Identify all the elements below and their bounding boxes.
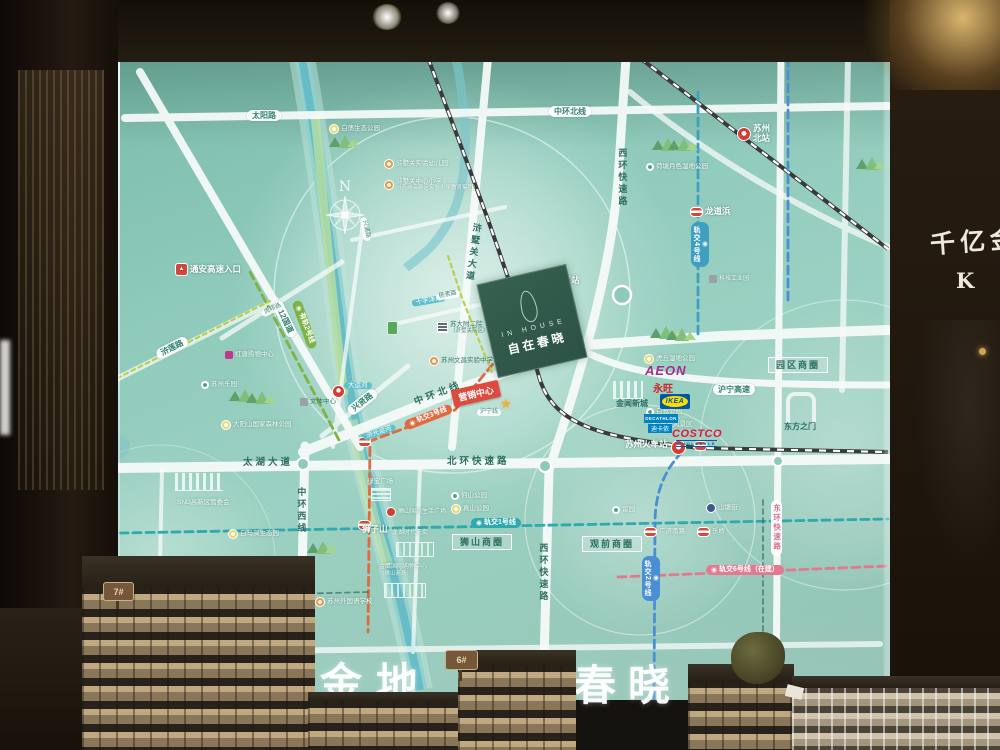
poi-culture-sports-center-icon (300, 398, 308, 406)
poi-wenchang-middle-school-icon (429, 356, 439, 366)
costco-wholesale-label: WHOLESALE (676, 440, 717, 447)
ceiling-light (436, 2, 460, 24)
metro-line1-pill: 轨交1号线 (471, 518, 521, 528)
showroom-photo: IN HOUSE 自在春晓 营销中心 ★ N AEON 永旺 IKEA DECA… (0, 0, 1000, 750)
decathlon-cn-label: 迪卡侬 (648, 424, 672, 433)
rail-huning-line: 沪宁线 (477, 409, 501, 416)
poi-jinchang-newtown: 金阊新城 (616, 399, 648, 408)
poi-xushuguan-kindergarten: 浒墅关实验幼儿园 (384, 159, 448, 169)
model-roof (792, 676, 1000, 688)
road-zhonghuan-west-label: 中环西线 (296, 487, 306, 535)
poi-tech-industrial-park-label: 科技工业园 (719, 276, 749, 283)
poi-shishan-intl-life-plaza-icon (386, 507, 396, 517)
biz-circle-guanqian-label: 观前商圈 (590, 539, 634, 549)
rail-huning-line-label: 沪宁线 (480, 409, 498, 416)
jinchang-skyline-icon (613, 381, 643, 399)
poi-dayangshan-forest-park-icon (221, 420, 231, 430)
poi-suda-fuer-hospital-icon (437, 322, 448, 333)
metro-line6-pill-label: 轨交6号线（在建） (719, 566, 779, 574)
poi-jinchang-newtown-label: 金阊新城 (616, 399, 648, 408)
poi-longfor-paradise-walk-label: 龙湖时代天街 (392, 530, 428, 537)
biz-circle-yuanqu: 园区商圈 (768, 357, 828, 373)
poi-tongan-expwy-entrance-icon: ▲ (175, 263, 188, 276)
poi-hetangyuese-wetland-park-icon (646, 163, 654, 171)
road-zhonghuan-north-pill: 中环北线 (549, 106, 591, 117)
gate-of-orient-icon (786, 392, 816, 424)
lot-sign-6: 6# (445, 650, 478, 670)
poi-zhenshan-park-label: 真山公园 (463, 505, 489, 512)
poi-suzhou-foreign-language-school: 苏州外国语学校 (315, 597, 373, 607)
station-guangji-south-rd-label: 广济南路 (659, 528, 685, 535)
wall-gold-dot (979, 348, 986, 355)
decathlon-logo: DECATHLON (644, 414, 678, 423)
metro-line-icon (295, 305, 303, 313)
poi-liuyuan: 留园 (612, 506, 635, 514)
station-leqiao-label: 乐桥 (712, 528, 725, 535)
poi-baidang-eco-park-label: 白荡生态公园 (341, 125, 380, 132)
biz-circle-shishan: 狮山商圈 (452, 534, 512, 550)
wall-light-streak (0, 340, 10, 435)
metro-line-icon (702, 241, 708, 247)
poi-xushuguan-primary-school: 浒墅关中心小学（苏州高新区实验小学教育集团） (384, 178, 479, 192)
metro-line-icon (653, 575, 659, 581)
metro-line-icon (409, 419, 417, 427)
station-longdaobang-label: 龙道浜 (705, 207, 731, 217)
poi-gate-of-orient-label: 东方之门 (784, 422, 816, 431)
road-beihuan-expwy-label: 北环快速路 (447, 457, 510, 468)
poi-xushuguan-primary-school-icon (384, 180, 394, 190)
poi-tech-industrial-park: 科技工业园 (709, 275, 749, 283)
poi-xushuguan-primary-school-sublabel: （苏州高新区实验小学教育集团） (396, 185, 479, 191)
poi-shantangjie-label: 山塘街 (718, 504, 738, 511)
poi-suda-fuer-hospital: 苏大附二院（浒墅关院区） (437, 321, 489, 335)
poi-suzhou-amusement-land-label: 苏州乐园 (211, 381, 237, 388)
poi-shishan-intl-life-plaza: 狮山国际生活广场 (386, 507, 446, 517)
metro-line4-pill-label: 轨交4号线 (692, 226, 700, 263)
poi-lvbao-plaza-label: 绿宝广场 (367, 478, 393, 485)
poi-liuyuan-icon (612, 506, 620, 514)
poi-culture-sports-center: 文体中心 (300, 398, 336, 406)
poi-heshan-park: 何山公园 (451, 492, 487, 500)
poi-wenchang-middle-school: 苏州文昌实验中学 (429, 356, 493, 366)
poi-jinying-mall-label: 金鹰国际购物中心 (379, 564, 427, 571)
poi-liuyuan-label: 留园 (622, 506, 635, 513)
poi-suzhou-foreign-language-school-icon (315, 597, 325, 607)
metro-line6-pill: 轨交6号线（在建） (706, 565, 784, 575)
road-taiyanglu-label: 太阳路 (252, 111, 276, 120)
metro-line2-pill: 轨交2号线 (642, 556, 660, 601)
model-building (688, 680, 794, 750)
poi-tech-industrial-park-icon (709, 275, 717, 283)
lvbao-mall-icon (371, 488, 391, 501)
river-dayunhe-label: 大运河 (348, 382, 368, 389)
ikea-logo: IKEA (660, 394, 690, 409)
wall-logo-letter: K (956, 268, 974, 293)
banner-char-3: 春 (574, 652, 616, 713)
station-leqiao: 乐桥 (697, 527, 725, 537)
poi-dayangshan-forest-park: 大阳山国家森林公园 (221, 420, 292, 430)
poi-heshan-park-label: 何山公园 (461, 492, 487, 499)
road-taihu-dadao: 太湖大道 (243, 458, 293, 469)
road-xihuan-expwy-north-label: 西环快速路 (617, 148, 627, 208)
poi-suzhou-amusement-land: 苏州乐园 (201, 381, 237, 389)
poi-hetangyuese-wetland-park: 荷塘月色湿地公园 (646, 163, 708, 171)
poi-longfor-paradise-walk: 龙湖时代天街 (392, 530, 428, 537)
compass-north-label: N (339, 179, 351, 195)
metro-station-icon (697, 527, 710, 537)
model-building (458, 664, 576, 750)
station-suzhou-railway: 苏州火车站 (625, 440, 668, 450)
metro-station-icon (690, 207, 703, 217)
road-taiyanglu: 太阳路 (247, 110, 281, 121)
poi-xushuguan-kindergarten-label: 浒墅关实验幼儿园 (396, 160, 448, 167)
ceiling-warm-glow (850, 0, 1000, 90)
road-zhonghuan-north-pill-label: 中环北线 (554, 107, 586, 116)
metro-line-icon (711, 567, 717, 573)
poi-hetangyuese-wetland-park-label: 荷塘月色湿地公园 (656, 163, 708, 170)
road-xihuan-expwy-south-label: 西环快速路 (538, 543, 548, 603)
road-zhonghuan-west: 中环西线 (296, 487, 306, 535)
costco-logo: COSTCO (672, 428, 722, 440)
ceiling-light (372, 4, 402, 30)
road-taihu-dadao-label: 太湖大道 (243, 458, 293, 469)
road-beihuan-expwy: 北环快速路 (447, 457, 510, 468)
wall-calligraphy: 千亿金 (929, 219, 1000, 261)
poi-zhenshan-park-icon (451, 504, 461, 514)
poi-gate-of-orient: 东方之门 (784, 422, 816, 431)
poi-hongtang-mall-icon (225, 351, 233, 359)
road-huning-expwy: 沪宁高速 (713, 384, 755, 395)
poi-zhenshan-park: 真山公园 (451, 504, 489, 514)
road-xihuan-expwy-north: 西环快速路 (617, 148, 627, 208)
poi-baidang-eco-park-icon (329, 124, 339, 134)
station-suzhou-north: 苏州北站 (737, 124, 773, 144)
snd-skyline-icon (175, 473, 223, 491)
canal-poi-icon (332, 385, 345, 398)
poi-hongtang-mall-label: 红唐购物中心 (235, 351, 274, 358)
metro-line1-pill-label: 轨交1号线 (484, 519, 516, 527)
poi-snd-committee: SND高新区管委会 (177, 499, 230, 506)
poi-heshan-park-icon (451, 492, 459, 500)
aeon-logo: AEON (645, 363, 687, 378)
banner-char-4: 晓 (628, 652, 670, 713)
poi-xushuguan-kindergarten-icon (384, 159, 394, 169)
station-suzhou-north-label: 苏州北站 (753, 124, 773, 144)
poi-suzhou-amusement-land-icon (201, 381, 209, 389)
poi-hongtang-mall: 红唐购物中心 (225, 351, 274, 359)
sales-center-star-icon: ★ (500, 396, 512, 412)
jinying-mall-icon (384, 583, 426, 598)
poi-culture-sports-center-label: 文体中心 (310, 398, 336, 405)
poi-tongan-expwy-entrance-label: 通安高速入口 (190, 265, 241, 275)
poi-suzhou-foreign-language-school-label: 苏州外国语学校 (327, 598, 373, 605)
metro-line-icon (476, 520, 482, 526)
sales-tower-icon (387, 321, 398, 335)
station-suzhou-railway-label: 苏州火车站 (625, 440, 668, 450)
poi-huqiu-wetland-park-label: 虎丘湿地公园 (656, 355, 695, 362)
river-dayunhe: 大运河 (344, 382, 372, 389)
poi-snd-committee-label: SND高新区管委会 (177, 499, 230, 506)
poi-dayangshan-forest-park-label: 大阳山国家森林公园 (233, 421, 292, 428)
poi-wenchang-middle-school-label: 苏州文昌实验中学 (441, 357, 493, 364)
lot-sign-7: 7# (103, 582, 134, 601)
poi-shizishan-label: 狮子山 (362, 525, 388, 535)
biz-circle-yuanqu-label: 园区商圈 (776, 360, 820, 370)
railway-station-icon (737, 127, 751, 141)
poi-baimajian-eco-park: 白马涧生态园 (228, 529, 279, 539)
poi-suda-fuer-hospital-sublabel: （浒墅关院区） (450, 328, 489, 334)
road-donghuan-expwy-label: 东环快速路 (772, 504, 781, 552)
station-longdaobang: 龙道浜 (690, 207, 731, 217)
poi-shantangjie-icon (706, 503, 716, 513)
leaf-logo-icon (517, 289, 540, 324)
metro-line2-pill-label: 轨交2号线 (643, 560, 651, 597)
poi-shizishan: 狮子山 (362, 525, 388, 535)
model-building (792, 686, 1000, 750)
poi-shantangjie: 山塘街 (706, 503, 738, 513)
aeon-cn-label: 永旺 (653, 380, 673, 395)
poi-jinying-mall-sublabel: （狮山商场） (379, 571, 427, 577)
wall-mural (915, 320, 1000, 570)
road-donghuan-expwy: 东环快速路 (771, 500, 782, 556)
compass: N (322, 178, 368, 196)
biz-circle-shishan-label: 狮山商圈 (460, 537, 504, 547)
poi-shishan-intl-life-plaza-label: 狮山国际生活广场 (398, 509, 446, 516)
station-guangji-south-rd: 广济南路 (644, 527, 685, 537)
poi-baimajian-eco-park-icon (228, 529, 238, 539)
crystal-rods-decor (18, 70, 104, 490)
biz-circle-guanqian: 观前商圈 (582, 536, 642, 552)
ikea-logo-text: IKEA (662, 396, 688, 407)
road-xihuan-expwy-south: 西环快速路 (538, 543, 548, 603)
poi-baidang-eco-park: 白荡生态公园 (329, 124, 380, 134)
poi-jinying-mall: 金鹰国际购物中心（狮山商场） (379, 564, 427, 577)
road-huning-expwy-label: 沪宁高速 (718, 385, 750, 394)
poi-baimajian-eco-park-label: 白马涧生态园 (240, 530, 279, 537)
poi-lvbao-plaza: 绿宝广场 (367, 478, 393, 485)
longfor-mall-icon (396, 542, 434, 557)
metro-line4-pill: 轨交4号线 (691, 222, 709, 267)
poi-tongan-expwy-entrance: ▲通安高速入口 (175, 263, 241, 276)
metro-station-icon (644, 527, 657, 537)
model-building (82, 586, 315, 750)
